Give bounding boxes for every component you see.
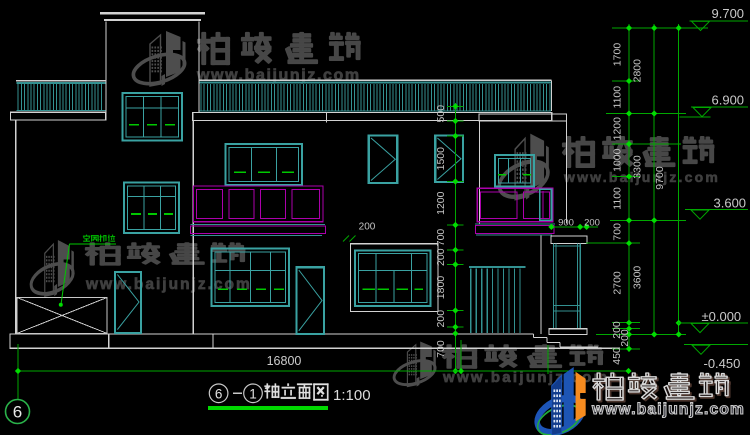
svg-text:3300: 3300 [632,155,644,179]
svg-text:1100: 1100 [612,86,624,109]
svg-text:±0.000: ±0.000 [702,309,742,324]
svg-text:6: 6 [215,386,223,401]
svg-text:9700: 9700 [654,166,666,190]
svg-text:2800: 2800 [632,59,644,83]
svg-text:16800: 16800 [267,354,302,368]
svg-text:2700: 2700 [612,271,624,295]
svg-text:200: 200 [435,248,447,266]
svg-text:700: 700 [435,229,447,247]
svg-text:6.900: 6.900 [712,92,745,107]
svg-text:700: 700 [435,340,447,358]
svg-text:www.baijunjz.com: www.baijunjz.com [196,67,361,84]
svg-text:1: 1 [249,386,257,401]
svg-text:1100: 1100 [612,187,624,210]
svg-text:1:100: 1:100 [333,387,371,404]
svg-text:1700: 1700 [612,43,624,67]
svg-text:700: 700 [612,223,624,241]
svg-text:200: 200 [435,310,447,328]
svg-text:500: 500 [435,105,447,123]
svg-text:3600: 3600 [632,266,644,290]
svg-text:6: 6 [13,403,22,422]
svg-text:3.600: 3.600 [714,195,747,210]
svg-text:450: 450 [611,347,623,365]
svg-text:1500: 1500 [435,147,447,171]
svg-text:1800: 1800 [435,276,447,300]
svg-text:1200: 1200 [612,117,624,141]
svg-text:1200: 1200 [435,191,447,215]
svg-text:www.baijunjz.com: www.baijunjz.com [85,276,252,293]
svg-text:-0.450: -0.450 [704,356,741,371]
svg-text:200: 200 [359,222,376,233]
svg-text:900: 900 [558,217,574,228]
svg-text:200: 200 [619,329,631,347]
svg-text:9.700: 9.700 [712,6,745,21]
svg-text:www.baijunjz.com: www.baijunjz.com [591,401,745,418]
svg-text:200: 200 [584,217,600,228]
svg-text:1000: 1000 [612,148,624,172]
